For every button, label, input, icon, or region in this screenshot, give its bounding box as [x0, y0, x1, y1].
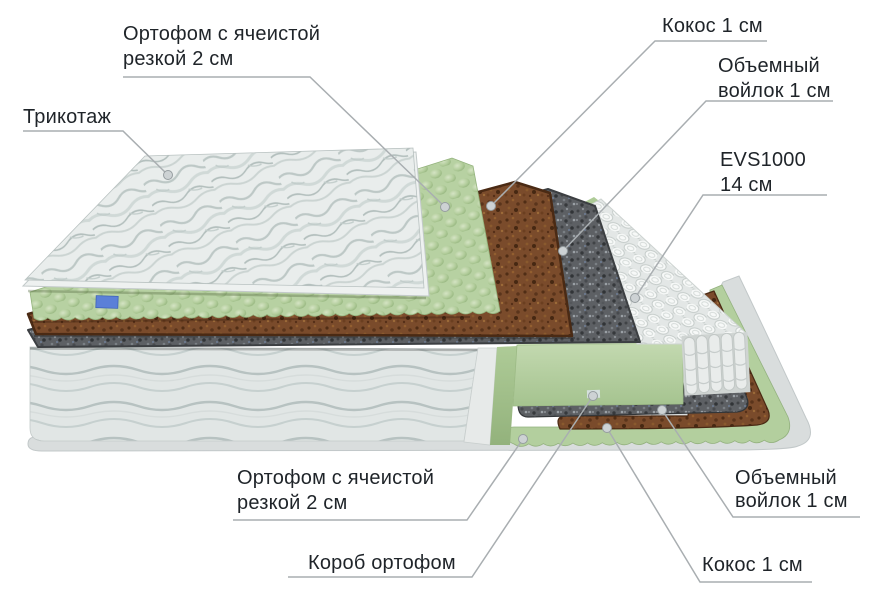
label-coco-bottom: Кокос 1 см — [702, 553, 803, 578]
shadow-under-felt — [30, 349, 480, 351]
label-box: Короб ортофом — [308, 551, 456, 576]
marker-dot — [559, 247, 568, 256]
marker-dot — [603, 424, 612, 433]
base-front-face — [30, 347, 478, 441]
marker-dot — [164, 171, 173, 180]
label-orthofoam-top: Ортофом с ячеистой резкой 2 см — [123, 22, 320, 72]
marker-dot — [658, 406, 667, 415]
quilt-top-layer — [25, 148, 424, 288]
label-tricot: Трикотаж — [23, 105, 111, 130]
mattress-diagram: Ортофом с ячеистой резкой 2 см Трикотаж … — [0, 0, 874, 599]
springs-coil-columns — [681, 332, 750, 396]
brand-tag — [96, 296, 118, 309]
marker-dot — [487, 202, 496, 211]
marker-dot — [631, 294, 640, 303]
label-orthofoam-bottom: Ортофом с ячеистой резкой 2 см — [237, 466, 434, 516]
label-felt-bottom: Объемный войлок 1 см — [735, 467, 848, 513]
marker-dot — [519, 435, 528, 444]
label-evs: EVS1000 14 см — [720, 148, 806, 198]
label-felt-top: Объемный войлок 1 см — [718, 54, 831, 104]
label-coco-top: Кокос 1 см — [662, 14, 763, 39]
marker-dot — [441, 203, 450, 212]
marker-dot — [589, 392, 598, 401]
